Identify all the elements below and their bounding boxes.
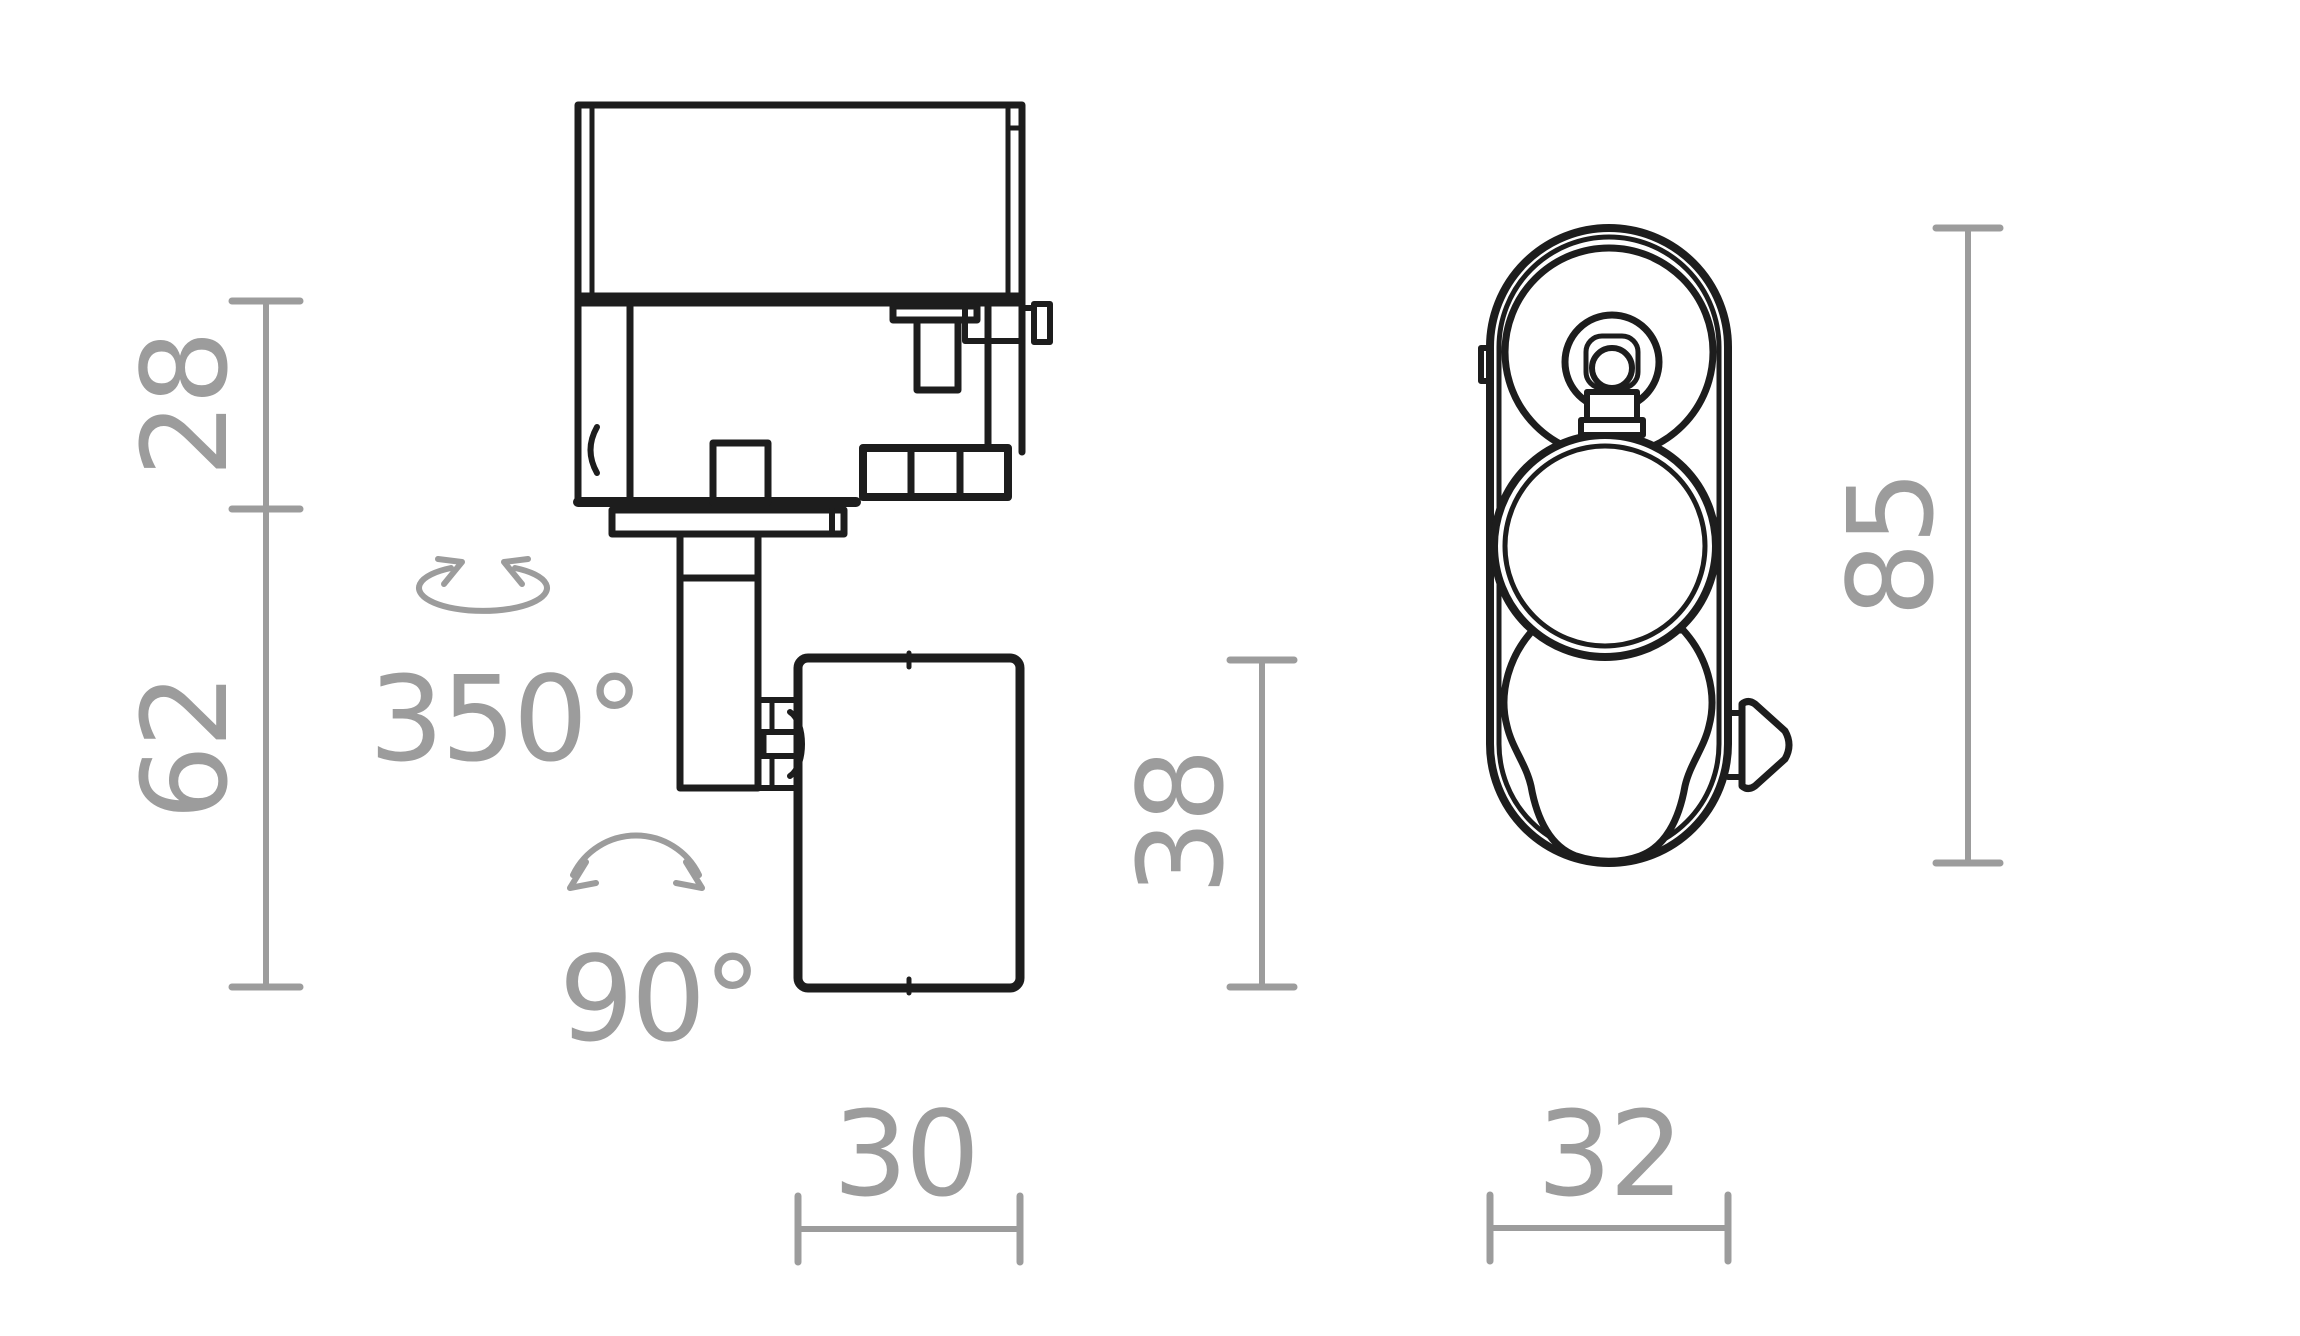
technical-drawing: 28 62 38 30 350°	[0, 0, 2300, 1336]
dim-28-label: 28	[116, 333, 254, 477]
drawing-canvas: 28 62 38 30 350°	[0, 0, 2300, 1336]
dim-30: 30	[798, 1085, 1020, 1262]
tilt-label: 90°	[559, 930, 759, 1068]
rotation-annotation: 350°	[369, 559, 641, 788]
mounting-flange	[612, 510, 844, 534]
dim-85: 85	[1822, 228, 2000, 863]
dim-30-label: 30	[833, 1085, 977, 1223]
tilt-arrow-icon	[573, 836, 699, 875]
dim-32: 32	[1490, 1085, 1728, 1261]
dim-32-label: 32	[1537, 1085, 1681, 1223]
dim-62: 62	[116, 509, 300, 987]
cable-arc	[591, 427, 598, 473]
track-adapter-housing	[578, 105, 1022, 303]
dim-38: 38	[1112, 660, 1294, 987]
dim-28: 28	[116, 301, 300, 509]
dim-62-label: 62	[116, 676, 254, 820]
adapter-body	[578, 303, 856, 502]
stem	[680, 534, 758, 788]
dim-85-label: 85	[1822, 473, 1960, 617]
clamp-end	[1034, 304, 1050, 342]
tilt-annotation: 90°	[559, 836, 759, 1068]
adjust-knob	[1728, 702, 1789, 789]
rotation-arrow-icon	[419, 568, 547, 611]
pivot-housing	[713, 443, 768, 502]
lens	[1494, 435, 1716, 657]
latch-mechanism	[863, 303, 1050, 497]
front-view: 85 32	[1481, 228, 2000, 1261]
side-view: 28 62 38 30 350°	[116, 105, 1294, 1262]
pivot-screw	[1565, 315, 1659, 435]
lamp-head	[798, 653, 1020, 993]
dim-38-label: 38	[1112, 751, 1250, 895]
rotation-label: 350°	[369, 650, 641, 788]
contact-block	[863, 448, 1008, 497]
